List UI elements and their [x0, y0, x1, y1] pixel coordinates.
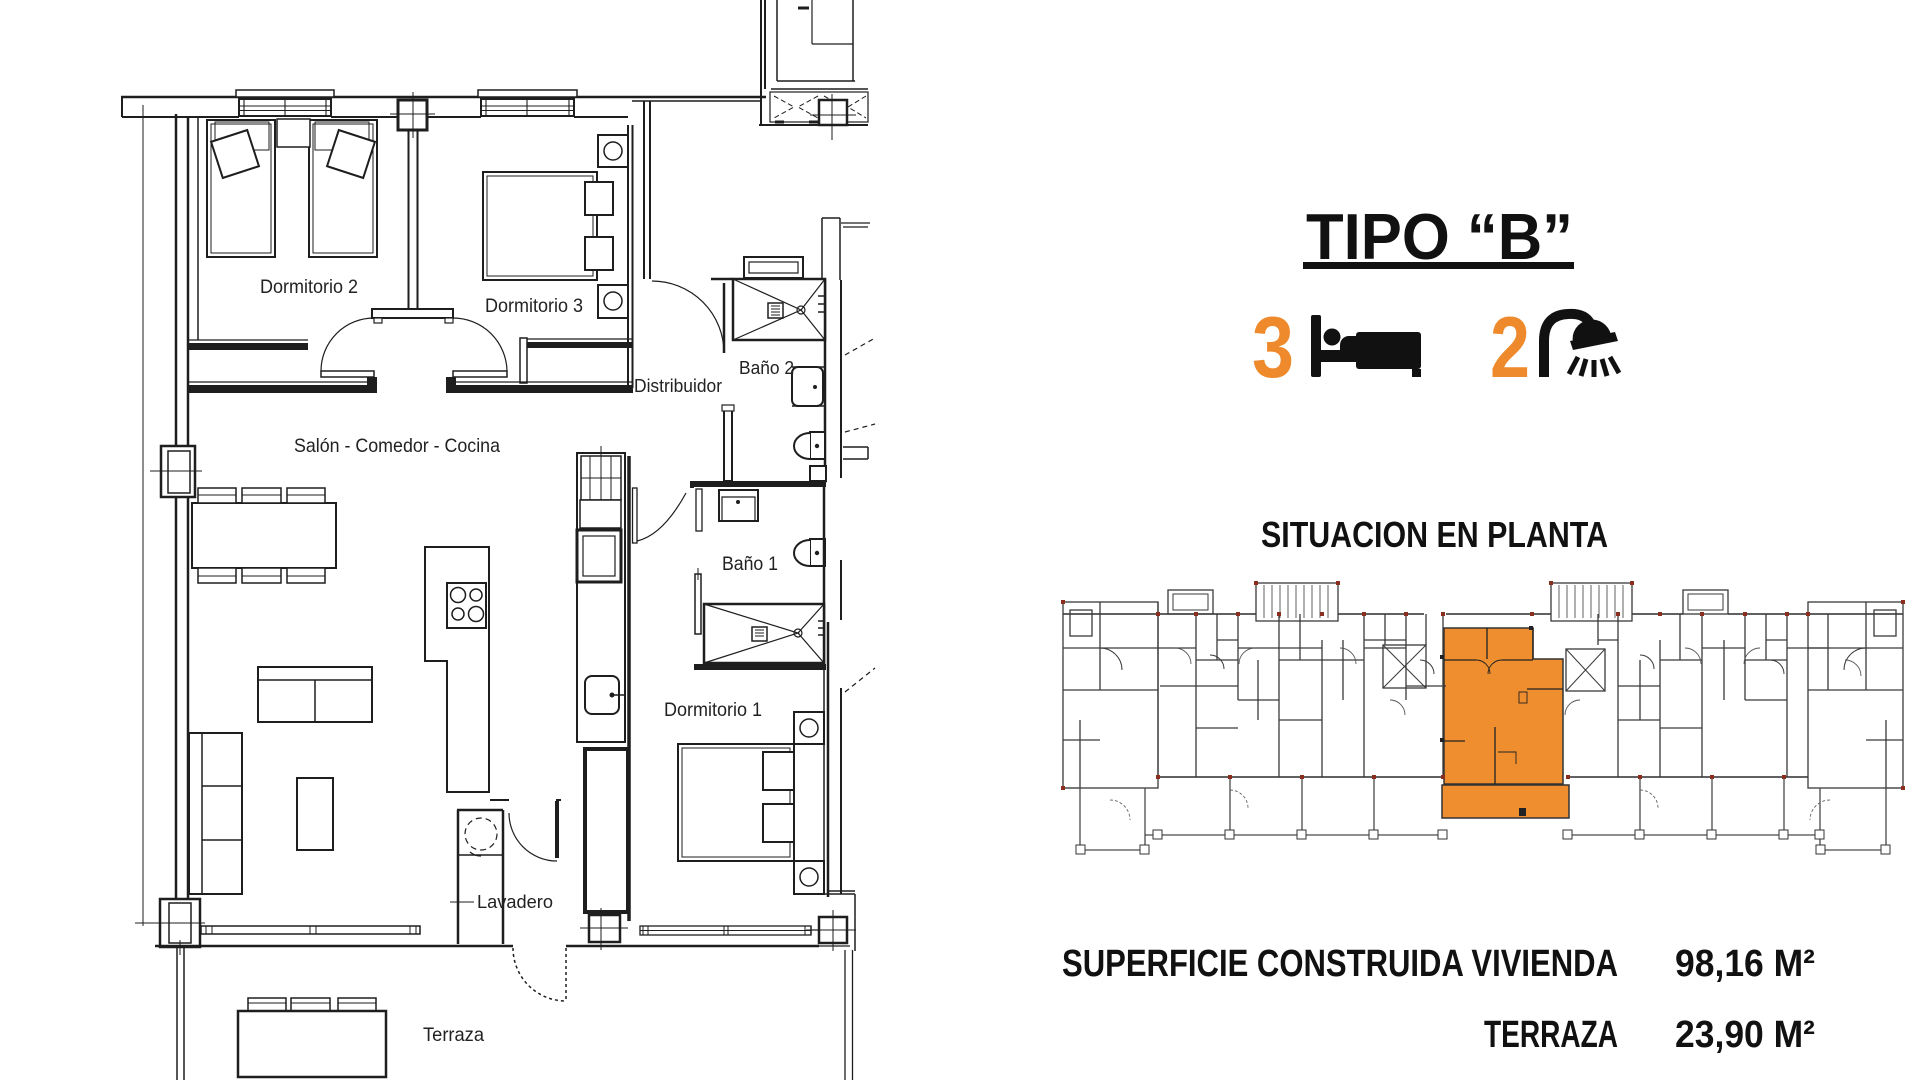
- svg-text:98,16 M²: 98,16 M²: [1675, 943, 1815, 985]
- svg-text:Dormitorio 2: Dormitorio 2: [260, 276, 358, 298]
- svg-text:Distribuidor: Distribuidor: [634, 375, 722, 396]
- svg-text:TERRAZA: TERRAZA: [1484, 1014, 1618, 1056]
- svg-text:Dormitorio 3: Dormitorio 3: [485, 295, 583, 317]
- svg-text:Dormitorio 1: Dormitorio 1: [664, 699, 762, 721]
- svg-text:Salón - Comedor - Cocina: Salón - Comedor - Cocina: [294, 435, 500, 457]
- svg-text:Lavadero: Lavadero: [477, 891, 553, 912]
- svg-text:Baño 1: Baño 1: [722, 554, 778, 575]
- svg-text:Baño 2: Baño 2: [739, 357, 794, 378]
- svg-text:2: 2: [1490, 300, 1530, 396]
- svg-text:3: 3: [1252, 300, 1294, 396]
- svg-text:Terraza: Terraza: [423, 1024, 484, 1046]
- svg-text:23,90 M²: 23,90 M²: [1675, 1014, 1815, 1056]
- svg-text:SUPERFICIE CONSTRUIDA VIVIENDA: SUPERFICIE CONSTRUIDA VIVIENDA: [1062, 943, 1618, 985]
- svg-text:SITUACION EN PLANTA: SITUACION EN PLANTA: [1261, 514, 1608, 555]
